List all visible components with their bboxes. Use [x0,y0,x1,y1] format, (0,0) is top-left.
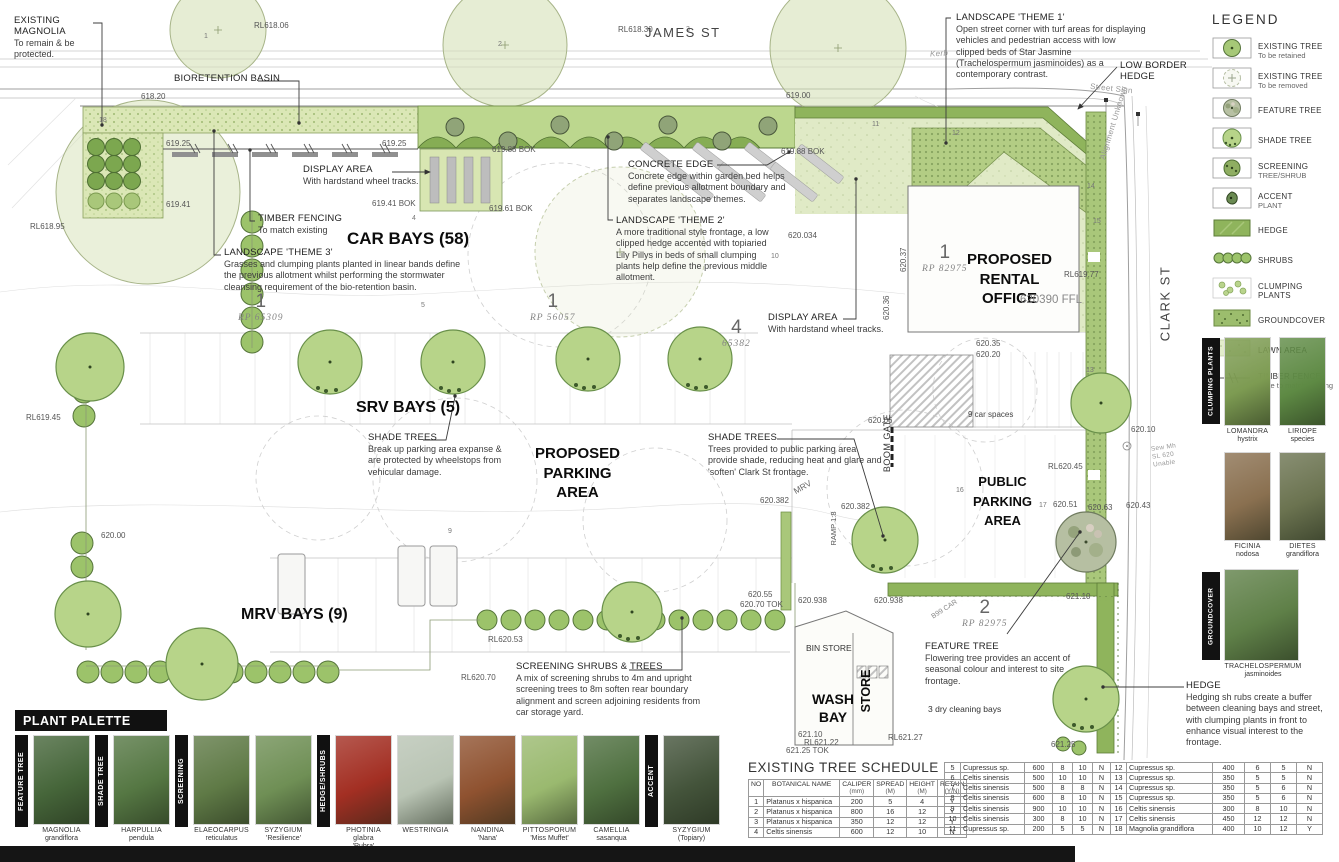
schedule-cell: 10 [1073,793,1093,803]
schedule-cell: 16 [874,807,907,817]
schedule-cell: N [1093,824,1111,834]
plant-photo [1224,337,1271,426]
schedule-cell: N [1093,763,1111,773]
schedule-cell: 6 [1245,763,1271,773]
car-bays-label: CAR BAYS (58) [347,229,469,249]
plant-variety: jasminoides [1224,671,1302,679]
callout-body: Open street corner with turf areas for d… [956,24,1146,80]
schedule-cell: 200 [1025,824,1053,834]
plant-name: LOMANDRA [1224,428,1271,436]
plant-card: SYZYGIUM'Resilience' [255,735,312,851]
plant-variety: 'Miss Muffet' [521,835,578,843]
callout-title: SCREENING SHRUBS & TREES [516,661,706,672]
schedule-cell: 10 [1073,804,1093,814]
schedule-cell: 10 [1073,814,1093,824]
schedule-cell: 10 [1073,763,1093,773]
plant-name: SYZYGIUM [255,827,312,835]
plant-name: CAMELLIA [583,827,640,835]
callout-title: DISPLAY AREA [768,312,908,323]
plant-variety: nodosa [1224,551,1271,559]
callout-body: With hardstand wheel tracks. [768,324,908,335]
plant-photo [113,735,170,825]
sidebar-plant-card: FICINIAnodosa [1224,452,1271,559]
site-plan-drawing [0,0,1339,862]
schedule-cell: 12 [874,817,907,827]
legend-label-group: SCREENINGTREE/SHRUB [1258,162,1308,180]
legend-label: SCREENING [1258,162,1308,171]
legend-label-group: SHRUBS [1258,256,1293,265]
schedule-cell: 12 [1111,763,1127,773]
wash-bay-label: WASH BAY [802,690,864,726]
rental-office-ffl: 620390 FFL [1020,294,1082,306]
plant-name: TRACHELOSPERMUM [1224,663,1302,671]
legend-sublabel: TREE/SHRUB [1258,171,1308,180]
schedule-row: 6Celtis sinensis5001010N [945,773,1111,783]
callout-timber-fencing: TIMBER FENCING To match existing [258,213,363,236]
legend-sublabel: To be retained [1258,51,1323,60]
schedule-cell: 11 [945,824,961,834]
callout-body: Flowering tree provides an accent of sea… [925,653,1085,687]
schedule-cell: 300 [1025,814,1053,824]
sidebar-plant-card: TRACHELOSPERMUMjasminoides [1224,569,1302,679]
schedule-cell: 200 [840,797,874,807]
plant-caption: DIETESgrandiflora [1279,543,1326,559]
schedule-header: BOTANICAL NAME [764,780,840,797]
plant-variety: reticulatus [193,835,250,843]
legend-swatch-accent-plant [1212,187,1252,214]
schedule-cell: Platanus x hispanica [764,817,840,827]
legend-swatch-hedge [1212,217,1252,244]
legend-label: EXISTING TREE [1258,72,1323,81]
callout-low-border-hedge: LOW BORDER HEDGE [1120,60,1200,83]
schedule-cell: 5 [1073,824,1093,834]
schedule-cell: 4 [907,797,938,807]
sidebar-plant-card: LIRIOPEspecies [1279,337,1326,444]
schedule-cell: 12 [1271,814,1297,824]
legend-swatch-existing-removed [1212,67,1252,94]
schedule-row: 4Celtis sinensis6001210N [749,827,967,837]
plant-card: PHOTINIA glabra'Rubra' [335,735,392,851]
schedule-cell: 10 [1245,824,1271,834]
schedule-cell: 800 [840,807,874,817]
legend-swatch-shrubs [1212,247,1252,274]
schedule-row: 17Celtis sinensis4501212N [1111,814,1323,824]
schedule-table-2: 5Cupressus sp.600810N6Celtis sinensis500… [944,762,1111,835]
mrv-bays-label: MRV BAYS (9) [241,606,348,624]
schedule-cell: N [1297,763,1323,773]
schedule-cell: 4 [749,827,764,837]
callout-body: Break up parking area expanse & are prot… [368,444,503,478]
plant-caption: MAGNOLIAgrandiflora [33,827,90,843]
schedule-cell: 10 [1053,773,1073,783]
legend-item: CLUMPING PLANTS [1212,277,1336,304]
legend-swatch-groundcover [1212,307,1252,334]
schedule-row: 10Celtis sinensis300810N [945,814,1111,824]
callout-title: LANDSCAPE 'THEME 1' [956,12,1146,23]
schedule-cell: 10 [1271,804,1297,814]
schedule-cell: 600 [1025,793,1053,803]
schedule-cell: 500 [1025,783,1053,793]
sidebar-plant-card: LOMANDRAhystrix [1224,337,1271,444]
sewer-note: Sew Mh SL 620 Unable [1150,442,1178,469]
bin-store-label: BIN STORE [806,643,852,653]
legend-item: SHRUBS [1212,247,1336,274]
schedule-cell: N [1093,804,1111,814]
plant-photo [1279,337,1326,426]
plant-photo [521,735,578,825]
schedule-row: 15Cupressus sp.35056N [1111,793,1323,803]
schedule-cell: Cupressus sp. [961,763,1025,773]
legend-item: SCREENINGTREE/SHRUB [1212,157,1336,184]
plant-photo [33,735,90,825]
plant-variety: grandiflora [33,835,90,843]
callout-body: To remain & be protected. [14,38,114,61]
callout-theme1: LANDSCAPE 'THEME 1' Open street corner w… [956,12,1146,80]
legend-label-group: HEDGE [1258,226,1288,235]
plant-name: NANDINA [459,827,516,835]
schedule-cell: 8 [945,793,961,803]
schedule-row: 14Cupressus sp.35056N [1111,783,1323,793]
callout-title: SHADE TREES [368,432,503,443]
schedule-cell: Celtis sinensis [961,783,1025,793]
callout-body: To match existing [258,225,363,236]
schedule-cell: 12 [907,807,938,817]
plant-photo [193,735,250,825]
schedule-cell: Celtis sinensis [764,827,840,837]
schedule-cell: 5 [1245,773,1271,783]
plant-name: DIETES [1279,543,1326,551]
schedule-cell: 3 [749,817,764,827]
schedule-cell: 8 [1053,763,1073,773]
plant-photo [663,735,720,825]
callout-existing-magnolia: EXISTING MAGNOLIA To remain & be protect… [14,15,114,61]
plant-photo [459,735,516,825]
legend-label: GROUNDCOVER [1258,316,1325,325]
plant-caption: LOMANDRAhystrix [1224,428,1271,444]
callout-hedge: HEDGE Hedging sh rubs create a buffer be… [1186,680,1336,748]
callout-screening-shrubs: SCREENING SHRUBS & TREES A mix of screen… [516,661,706,718]
plant-name: LIRIOPE [1279,428,1326,436]
schedule-cell: N [1093,783,1111,793]
car-spaces-label: 9 car spaces [968,410,1013,419]
store-label: STORE [859,661,873,721]
plant-card: NANDINA'Nana' [459,735,516,851]
callout-title: CONCRETE EDGE [628,159,793,170]
legend-sublabel: To be removed [1258,81,1323,90]
schedule-cell: Cupressus sp. [961,824,1025,834]
callout-display-area-1: DISPLAY AREA With hardstand wheel tracks… [303,164,438,187]
feature-tree-symbol [1056,512,1116,572]
callout-theme2: LANDSCAPE 'THEME 2' A more traditional s… [616,215,781,283]
schedule-cell: 13 [1111,773,1127,783]
schedule-row: 2Platanus x hispanica8001612Y [749,807,967,817]
plant-name: FICINIA [1224,543,1271,551]
srv-bays-label: SRV BAYS (5) [356,399,460,417]
schedule-cell: Platanus x hispanica [764,807,840,817]
callout-title: DISPLAY AREA [303,164,438,175]
public-parking-label: PUBLIC PARKING AREA [950,472,1055,531]
schedule-cell: Celtis sinensis [961,804,1025,814]
legend-item: ACCENTPLANT [1212,187,1336,214]
schedule-cell: 6 [1271,783,1297,793]
legend-label-group: ACCENTPLANT [1258,192,1293,210]
legend-item: SHADE TREE [1212,127,1336,154]
schedule-row: 11Cupressus sp.20055N [945,824,1111,834]
proposed-parking-label: PROPOSED PARKING AREA [520,444,635,503]
schedule-cell: Celtis sinensis [1127,814,1213,824]
plant-name: HARPULLIA [113,827,170,835]
callout-body: With hardstand wheel tracks. [303,176,438,187]
kerb-label: Kerb [930,49,949,59]
plant-name: PHOTINIA glabra [335,827,392,843]
plant-card: SYZYGIUM(Topiary) [663,735,720,851]
schedule-cell: 10 [1053,804,1073,814]
plant-variety: species [1279,436,1326,444]
legend-swatch-feature-tree [1212,97,1252,124]
callout-title: FEATURE TREE [925,641,1085,652]
callout-title: BIORETENTION BASIN [174,73,309,84]
schedule-row: 9Celtis sinensis9001010N [945,804,1111,814]
legend-item: GROUNDCOVER [1212,307,1336,334]
schedule-cell: 12 [907,817,938,827]
schedule-cell: 15 [1111,793,1127,803]
schedule-cell: Celtis sinensis [1127,804,1213,814]
schedule-cell: N [1093,793,1111,803]
legend-label-group: FEATURE TREE [1258,106,1322,115]
plant-name: WESTRINGIA [397,827,454,835]
sidebar-plant-card: DIETESgrandiflora [1279,452,1326,559]
schedule-cell: 5 [1245,783,1271,793]
callout-theme3: LANDSCAPE 'THEME 3' Grasses and clumping… [224,247,464,293]
plant-variety: hystrix [1224,436,1271,444]
plant-caption: NANDINA'Nana' [459,827,516,843]
schedule-cell: N [1093,773,1111,783]
schedule-cell: 5 [1271,763,1297,773]
schedule-header: CALIPER(mm) [840,780,874,797]
schedule-cell: Cupressus sp. [1127,763,1213,773]
plant-card: HARPULLIApendula [113,735,170,851]
schedule-cell: N [1297,814,1323,824]
callout-bioretention: BIORETENTION BASIN [174,73,309,85]
callout-feature-tree: FEATURE TREE Flowering tree provides an … [925,641,1085,687]
schedule-cell: Celtis sinensis [961,793,1025,803]
palette-category: FEATURE TREE [15,735,28,827]
boom-gate-label: BOOM GATE [882,408,892,478]
schedule-title: EXISTING TREE SCHEDULE [748,760,939,775]
legend-label: EXISTING TREE [1258,42,1323,51]
schedule-cell: 400 [1213,763,1245,773]
callout-concrete-edge: CONCRETE EDGE Concrete edge within garde… [628,159,793,205]
landscape-plan-page: RL618.06RL618.30618.20619.00619.25619.25… [0,0,1339,862]
legend-swatch-existing-retained [1212,37,1252,64]
plant-photo [1224,569,1299,661]
schedule-cell: 12 [874,827,907,837]
schedule-cell: 5 [874,797,907,807]
palette-category: HEDGE/SHRUBS [317,735,330,827]
callout-title: EXISTING MAGNOLIA [14,15,114,37]
schedule-cell: 10 [907,827,938,837]
plant-name: SYZYGIUM [663,827,720,835]
schedule-cell: 350 [1213,773,1245,783]
schedule-cell: 8 [1053,814,1073,824]
schedule-cell: N [1297,804,1323,814]
schedule-cell: 8 [1073,783,1093,793]
schedule-cell: 10 [945,814,961,824]
plant-variety: grandiflora [1279,551,1326,559]
schedule-cell: 5 [945,763,961,773]
schedule-cell: N [1297,793,1323,803]
plant-photo [255,735,312,825]
schedule-row: 13Cupressus sp.35055N [1111,773,1323,783]
plant-palette-title-text: PLANT PALETTE [23,714,131,728]
schedule-cell: 600 [840,827,874,837]
schedule-cell: 450 [1213,814,1245,824]
schedule-cell: 9 [945,804,961,814]
callout-shade-trees-2: SHADE TREES Trees provided to public par… [708,432,883,478]
footer-bar [0,846,1075,862]
james-st-label: JAMES ST [645,25,721,40]
legend-label: SHADE TREE [1258,136,1312,145]
schedule-cell: 350 [1213,783,1245,793]
plant-photo [583,735,640,825]
schedule-cell: 7 [945,783,961,793]
schedule-cell: N [1093,814,1111,824]
schedule-cell: 18 [1111,824,1127,834]
plant-caption: PITTOSPORUM'Miss Muffet' [521,827,578,843]
schedule-cell: N [1297,773,1323,783]
legend-item: EXISTING TREETo be retained [1212,37,1336,64]
legend-label-group: SHADE TREE [1258,136,1312,145]
plant-caption: LIRIOPEspecies [1279,428,1326,444]
schedule-cell: N [1297,783,1323,793]
legend-label: ACCENT [1258,192,1293,201]
schedule-cell: 8 [1053,783,1073,793]
schedule-cell: 350 [840,817,874,827]
schedule-row: 7Celtis sinensis50088N [945,783,1111,793]
palette-category: SHADE TREE [95,735,108,827]
plant-photo [397,735,454,825]
legend-swatch-screening-tree [1212,157,1252,184]
schedule-cell: 12 [1245,814,1271,824]
schedule-row: 8Celtis sinensis600810N [945,793,1111,803]
schedule-row: 5Cupressus sp.600810N [945,763,1111,773]
plant-palette-row: FEATURE TREEMAGNOLIAgrandifloraSHADE TRE… [15,735,720,851]
schedule-cell: 14 [1111,783,1127,793]
schedule-table-3: 12Cupressus sp.40065N13Cupressus sp.3505… [1110,762,1323,835]
schedule-cell: 5 [1245,793,1271,803]
callout-title: HEDGE [1186,680,1336,691]
schedule-cell: 2 [749,807,764,817]
vehicle-outlines [278,546,457,614]
schedule-cell: Platanus x hispanica [764,797,840,807]
plant-card: WESTRINGIA [397,735,454,851]
callout-title: LANDSCAPE 'THEME 2' [616,215,781,226]
schedule-cell: 6 [1271,793,1297,803]
schedule-cell: 400 [1213,824,1245,834]
callout-body: Concrete edge within garden bed helps de… [628,171,793,205]
schedule-cell: 8 [1245,804,1271,814]
plant-variety: 'Nana' [459,835,516,843]
plant-caption: ELAEOCARPUSreticulatus [193,827,250,843]
legend-label: FEATURE TREE [1258,106,1322,115]
tree-schedule-table: NOBOTANICAL NAMECALIPER(mm)SPREAD(M)HEIG… [748,779,967,838]
callout-body: A more traditional style frontage, a low… [616,227,781,283]
plant-photo [1224,452,1271,541]
plant-caption: HARPULLIApendula [113,827,170,843]
plant-card: MAGNOLIAgrandiflora [33,735,90,851]
schedule-row: 18Magnolia grandiflora4001012Y [1111,824,1323,834]
schedule-table-1: NOBOTANICAL NAMECALIPER(mm)SPREAD(M)HEIG… [748,779,967,838]
schedule-cell: 17 [1111,814,1127,824]
schedule-cell: 900 [1025,804,1053,814]
schedule-row: 1Platanus x hispanica20054Y [749,797,967,807]
callout-body: A mix of screening shrubs to 4m and upri… [516,673,706,718]
palette-category: SCREENING [175,735,188,827]
callout-body: Trees provided to public parking area pr… [708,444,883,478]
schedule-cell: Celtis sinensis [961,773,1025,783]
callout-display-area-2: DISPLAY AREA With hardstand wheel tracks… [768,312,908,335]
plant-name: ELAEOCARPUS [193,827,250,835]
clumping-plants-bar: CLUMPING PLANTS [1202,338,1220,424]
schedule-cell: 8 [1053,793,1073,803]
schedule-header: SPREAD(M) [874,780,907,797]
legend-item: EXISTING TREETo be removed [1212,67,1336,94]
schedule-row: 16Celtis sinensis300810N [1111,804,1323,814]
callout-title: SHADE TREES [708,432,883,443]
schedule-cell: 1 [749,797,764,807]
callout-title: TIMBER FENCING [258,213,363,224]
schedule-cell: 5 [1053,824,1073,834]
legend-label-group: EXISTING TREETo be removed [1258,72,1323,90]
schedule-cell: 500 [1025,773,1053,783]
plant-name: MAGNOLIA [33,827,90,835]
legend-label-group: CLUMPING PLANTS [1258,282,1336,300]
schedule-cell: Magnolia grandiflora [1127,824,1213,834]
schedule-cell: 300 [1213,804,1245,814]
schedule-cell: 16 [1111,804,1127,814]
plant-caption: CAMELLIAsasanqua [583,827,640,843]
tree-schedule-table: 5Cupressus sp.600810N6Celtis sinensis500… [944,762,1111,835]
plant-caption: FICINIAnodosa [1224,543,1271,559]
schedule-cell: 10 [1073,773,1093,783]
legend-sublabel: PLANT [1258,201,1293,210]
plant-photo [335,735,392,825]
schedule-row: 12Cupressus sp.40065N [1111,763,1323,773]
schedule-header: HEIGHT(M) [907,780,938,797]
schedule-cell: Celtis sinensis [961,814,1025,824]
plant-caption: TRACHELOSPERMUMjasminoides [1224,663,1302,679]
schedule-cell: 6 [945,773,961,783]
schedule-header: NO [749,780,764,797]
plant-palette-title: PLANT PALETTE [15,710,167,731]
plant-name: PITTOSPORUM [521,827,578,835]
schedule-cell: Cupressus sp. [1127,793,1213,803]
legend-label-group: EXISTING TREETo be retained [1258,42,1323,60]
callout-title: LOW BORDER HEDGE [1120,60,1200,82]
schedule-row: 3Platanus x hispanica3501212Y [749,817,967,827]
plant-variety: sasanqua [583,835,640,843]
schedule-cell: 600 [1025,763,1053,773]
plant-caption: SYZYGIUM'Resilience' [255,827,312,843]
schedule-cell: 12 [1271,824,1297,834]
schedule-cell: 5 [1271,773,1297,783]
callout-body: Grasses and clumping plants planted in l… [224,259,464,293]
plant-caption: SYZYGIUM(Topiary) [663,827,720,843]
schedule-cell: 350 [1213,793,1245,803]
plant-variety: pendula [113,835,170,843]
plant-variety: (Topiary) [663,835,720,843]
schedule-cell: Cupressus sp. [1127,783,1213,793]
